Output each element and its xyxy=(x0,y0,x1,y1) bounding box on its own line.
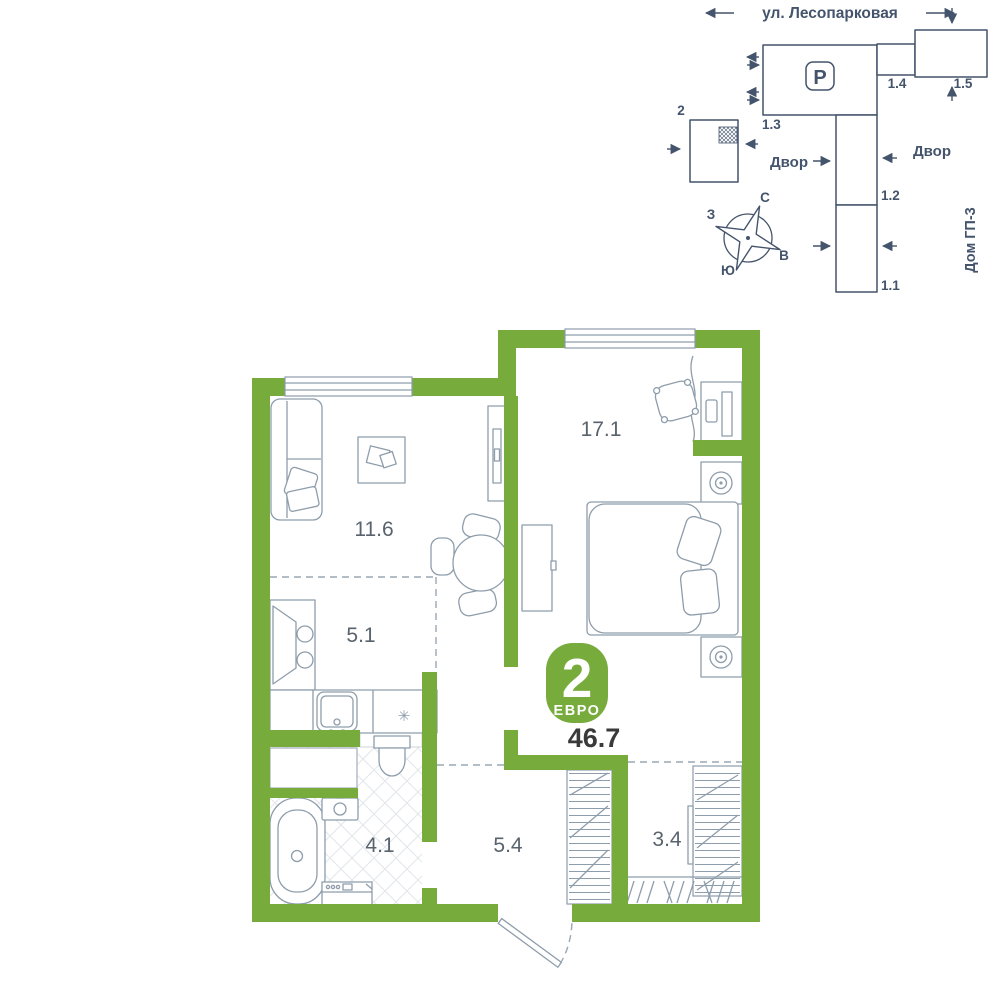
room-label-bathroom: 4.1 xyxy=(365,834,394,857)
room-label-wardrobe: 3.4 xyxy=(652,828,682,851)
double-bed xyxy=(587,502,738,635)
door-swing-arc xyxy=(560,922,572,964)
nightstand-top xyxy=(701,462,742,504)
compass-east: В xyxy=(779,248,789,263)
site-plan: ул. Лесопарковая P 1.3 1.4 1.5 2 xyxy=(667,5,987,293)
yard-label-left: Двор xyxy=(770,154,808,171)
window-bedroom xyxy=(565,329,695,348)
room-label-bedroom: 17.1 xyxy=(581,418,622,441)
building-strip-1-2-1-1: 1.2 1.1 xyxy=(813,115,900,293)
compass-west: З xyxy=(707,207,715,222)
washing-machine xyxy=(322,882,372,906)
compass: С З В Ю xyxy=(707,190,789,278)
room-label-living: 11.6 xyxy=(354,518,393,541)
building-2-label: 2 xyxy=(677,103,685,118)
desk-area xyxy=(653,356,742,444)
badge-room-count: 2 xyxy=(562,647,593,709)
building-1-1-label: 1.1 xyxy=(881,278,900,293)
street-label: ул. Лесопарковая xyxy=(762,5,898,22)
floorplan-page: ул. Лесопарковая P 1.3 1.4 1.5 2 xyxy=(0,0,1000,1000)
nightstand-bottom xyxy=(701,637,742,677)
building-1-4-label: 1.4 xyxy=(888,76,907,91)
sofa xyxy=(271,399,322,520)
building-1-3-label: 1.3 xyxy=(762,117,781,132)
dining-table-set xyxy=(431,512,509,618)
plan-type-badge: 2 ЕВРО xyxy=(546,643,608,723)
yard-label-right: Двор xyxy=(913,143,951,160)
building-2-hatch xyxy=(719,127,737,143)
room-label-kitchen: 5.1 xyxy=(346,624,375,647)
building-1-5: 1.5 xyxy=(915,8,987,101)
window-living xyxy=(285,377,412,396)
house-gp3-label: Дом ГП-3 xyxy=(963,207,979,272)
total-area: 46.7 xyxy=(568,723,621,753)
room-label-hallway: 5.4 xyxy=(493,834,523,857)
building-1-4: 1.4 xyxy=(877,44,915,91)
coffee-table xyxy=(358,437,405,483)
compass-north: С xyxy=(760,190,770,205)
badge-type-label: ЕВРО xyxy=(554,703,601,719)
building-2: 2 xyxy=(667,103,758,182)
compass-south: Ю xyxy=(721,263,735,278)
bathroom-niche xyxy=(270,748,357,788)
washbasin xyxy=(322,798,358,820)
hall-wardrobe xyxy=(567,770,612,904)
bathtub xyxy=(270,798,325,904)
dresser-bedroom xyxy=(522,525,556,611)
kitchen-counter-bottom: ✳ xyxy=(270,690,437,736)
blanket xyxy=(589,504,701,633)
floorplan-svg: ул. Лесопарковая P 1.3 1.4 1.5 2 xyxy=(0,0,1000,1000)
entrance-door xyxy=(498,919,572,968)
parking-letter: P xyxy=(813,67,826,89)
floor-plan: ✳ xyxy=(252,329,760,967)
building-1-5-label: 1.5 xyxy=(954,76,973,91)
fridge-symbol: ✳ xyxy=(398,708,411,725)
building-1-2-label: 1.2 xyxy=(881,188,900,203)
kitchen-counter-left xyxy=(270,600,315,690)
